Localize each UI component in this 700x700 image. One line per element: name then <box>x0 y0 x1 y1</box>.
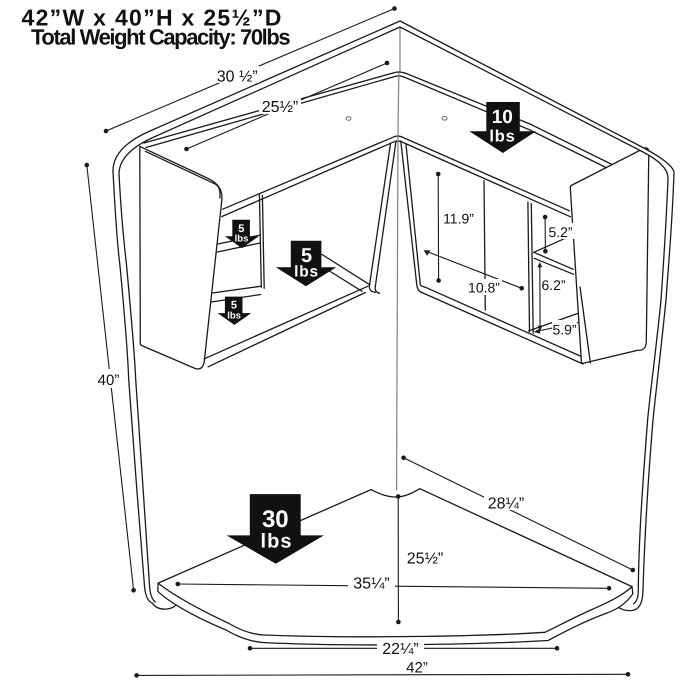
svg-text:42”: 42” <box>406 660 428 677</box>
svg-text:lbs: lbs <box>261 531 293 553</box>
svg-text:6.2”: 6.2” <box>541 277 565 293</box>
svg-text:Total Weight Capacity: 70lbs: Total Weight Capacity: 70lbs <box>31 25 290 50</box>
svg-text:35¼”: 35¼” <box>353 576 389 593</box>
svg-text:lbs: lbs <box>227 310 241 321</box>
svg-text:5.9”: 5.9” <box>552 322 576 338</box>
svg-text:22¼”: 22¼” <box>382 641 418 658</box>
svg-text:25½”: 25½” <box>262 99 298 116</box>
svg-text:lbs: lbs <box>294 264 319 281</box>
svg-text:lbs: lbs <box>489 128 515 146</box>
svg-text:10.8”: 10.8” <box>468 280 500 296</box>
svg-text:28¼”: 28¼” <box>488 496 524 513</box>
svg-text:lbs: lbs <box>235 234 249 245</box>
svg-text:30: 30 <box>262 506 289 533</box>
svg-text:10: 10 <box>492 107 513 128</box>
svg-text:11.9”: 11.9” <box>443 211 474 227</box>
svg-text:5.2”: 5.2” <box>548 224 572 240</box>
svg-text:25½”: 25½” <box>407 551 443 568</box>
svg-text:40”: 40” <box>98 372 120 389</box>
svg-text:30 ½”: 30 ½” <box>217 69 258 86</box>
